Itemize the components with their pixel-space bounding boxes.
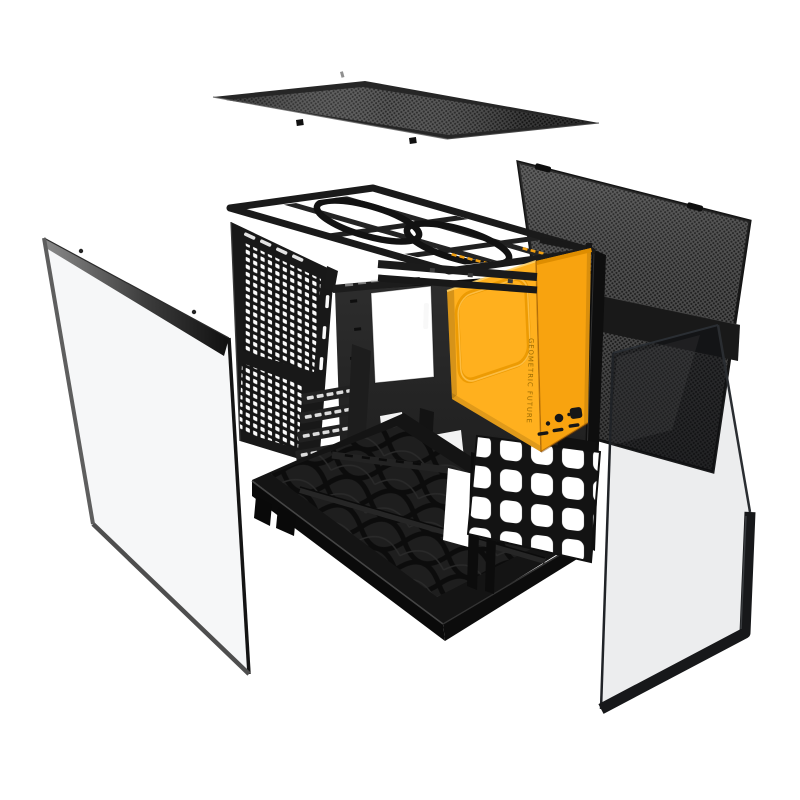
- cable-slot: [423, 303, 429, 329]
- top-mesh-clip-nub: [296, 119, 304, 126]
- top-mesh-clip-nub: [409, 137, 417, 144]
- power-button-cutout: [569, 407, 582, 420]
- audio-jack-cutout: [546, 421, 550, 425]
- glass-mount-pin: [192, 310, 196, 314]
- front-panel-front-face: [536, 248, 591, 452]
- glass-mount-pin: [79, 249, 83, 253]
- exploded-pc-case-illustration: GEOMETRIC FUTURE: [0, 0, 800, 800]
- product-photo: GEOMETRIC FUTURE: [0, 0, 800, 800]
- led-hole: [567, 413, 570, 416]
- cpu-cutout: [371, 286, 434, 383]
- reset-button-cutout: [555, 414, 564, 423]
